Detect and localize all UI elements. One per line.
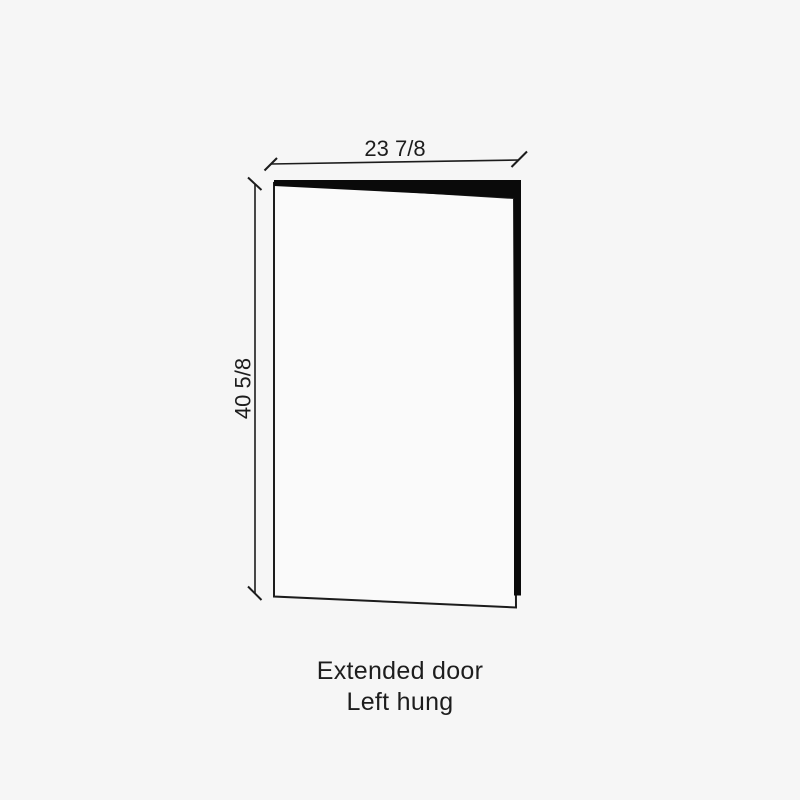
door-spec-diagram: 23 7/8 40 5/8 Extended door Left hung xyxy=(0,0,800,800)
door-caption-line1: Extended door xyxy=(0,656,800,687)
door-face xyxy=(274,183,516,608)
width-dimension: 23 7/8 xyxy=(265,136,528,171)
door-caption: Extended door Left hung xyxy=(0,656,800,718)
width-dimension-label: 23 7/8 xyxy=(364,136,425,161)
height-dimension-label: 40 5/8 xyxy=(231,358,256,419)
door-caption-line2: Left hung xyxy=(0,687,800,718)
width-dimension-tick-right xyxy=(512,152,528,168)
height-dimension: 40 5/8 xyxy=(231,178,262,601)
